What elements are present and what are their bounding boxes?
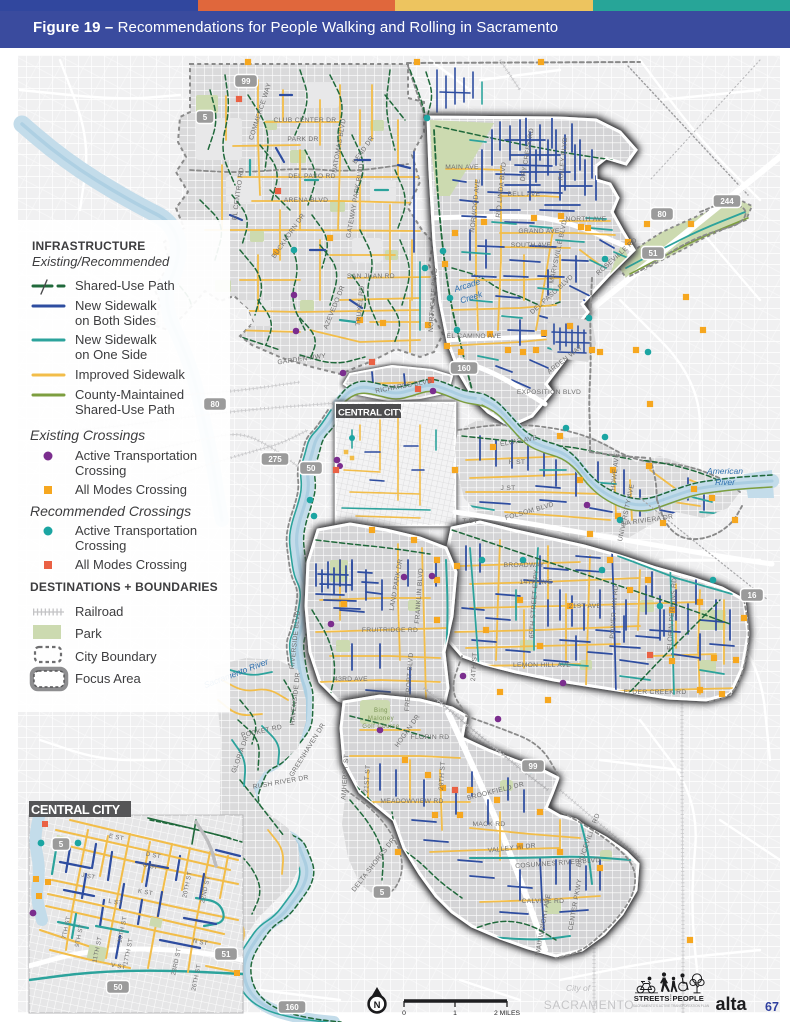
svg-text:Railroad: Railroad: [75, 604, 123, 619]
svg-text:Crossing: Crossing: [75, 463, 126, 478]
svg-text:Bing: Bing: [374, 708, 388, 714]
svg-text:J ST: J ST: [501, 485, 516, 492]
svg-text:2 MILES: 2 MILES: [494, 1010, 521, 1017]
svg-text:City of: City of: [566, 983, 592, 993]
svg-text:Active Transportation: Active Transportation: [75, 523, 197, 538]
svg-text:SAN JUAN RD: SAN JUAN RD: [347, 273, 395, 280]
svg-text:43RD AVE: 43RD AVE: [334, 676, 368, 683]
svg-text:County-Maintained: County-Maintained: [75, 387, 184, 402]
svg-text:BELL AVE: BELL AVE: [508, 191, 541, 198]
svg-text:50: 50: [307, 464, 316, 473]
svg-text:Golf Course: Golf Course: [362, 724, 400, 730]
svg-text:Shared-Use Path: Shared-Use Path: [75, 402, 175, 417]
svg-text:275: 275: [268, 455, 282, 464]
svg-text:EXPOSITION BLVD: EXPOSITION BLVD: [517, 389, 581, 396]
svg-text:Existing/Recommended: Existing/Recommended: [32, 254, 170, 269]
svg-text:Park: Park: [75, 626, 102, 641]
svg-text:SOUTH AVE: SOUTH AVE: [511, 242, 552, 249]
svg-text:16: 16: [748, 591, 757, 600]
svg-text:Active Transportation: Active Transportation: [75, 448, 197, 463]
svg-text:PARK DR: PARK DR: [287, 136, 318, 143]
svg-text:New Sidewalk: New Sidewalk: [75, 332, 157, 347]
svg-text:80: 80: [211, 400, 220, 409]
svg-text:51: 51: [222, 950, 231, 959]
svg-text:51: 51: [649, 249, 658, 258]
svg-text:American: American: [706, 466, 743, 476]
svg-text:INFRASTRUCTURE: INFRASTRUCTURE: [32, 239, 145, 253]
svg-text:SACRAMENTO: SACRAMENTO: [544, 998, 634, 1012]
svg-text:N: N: [374, 1000, 381, 1011]
svg-text:Existing Crossings: Existing Crossings: [30, 427, 145, 443]
svg-text:on One Side: on One Side: [75, 347, 147, 362]
svg-text:City Boundary: City Boundary: [75, 649, 157, 664]
svg-text:244: 244: [720, 197, 734, 206]
svg-text:STREETS: STREETS: [634, 994, 670, 1003]
svg-text:BROADWAY: BROADWAY: [504, 562, 545, 569]
svg-text:Improved Sidewalk: Improved Sidewalk: [75, 367, 185, 382]
svg-text:DESTINATIONS + BOUNDARIES: DESTINATIONS + BOUNDARIES: [30, 580, 218, 594]
svg-text:Focus Area: Focus Area: [75, 671, 142, 686]
svg-text:21ST AVE: 21ST AVE: [569, 603, 602, 610]
svg-text:99: 99: [529, 762, 538, 771]
svg-text:CLUB CENTER DR: CLUB CENTER DR: [274, 117, 337, 124]
svg-text:PEOPLE: PEOPLE: [673, 994, 704, 1003]
svg-text:ELDER CREEK RD: ELDER CREEK RD: [624, 689, 687, 696]
svg-text:5: 5: [59, 840, 64, 849]
svg-text:SACRAMENTO'S ACTIVE TRANSPORTA: SACRAMENTO'S ACTIVE TRANSPORTATION PLAN: [633, 1004, 710, 1008]
svg-text:ARENA BLVD: ARENA BLVD: [284, 197, 329, 204]
svg-text:Crossing: Crossing: [75, 538, 126, 553]
svg-text:160: 160: [285, 1003, 299, 1012]
svg-text:MACK RD: MACK RD: [473, 821, 506, 828]
svg-text:5: 5: [203, 113, 208, 122]
svg-text:Shared-Use Path: Shared-Use Path: [75, 278, 175, 293]
svg-text:River: River: [715, 477, 736, 487]
svg-text:T ST: T ST: [462, 518, 478, 525]
svg-text:5: 5: [380, 888, 385, 897]
svg-text:50: 50: [114, 983, 123, 992]
svg-text:All Modes Crossing: All Modes Crossing: [75, 557, 187, 572]
svg-text:FRUITRIDGE RD: FRUITRIDGE RD: [362, 627, 418, 634]
svg-text:80: 80: [658, 210, 667, 219]
svg-text:GRAND AVE: GRAND AVE: [518, 228, 559, 235]
svg-text:LEMON HILL AVE: LEMON HILL AVE: [513, 662, 571, 669]
svg-text:MAIN AVE: MAIN AVE: [445, 164, 479, 171]
svg-text:alta: alta: [715, 994, 747, 1014]
svg-text:Recommended Crossings: Recommended Crossings: [30, 503, 191, 519]
svg-text:67: 67: [765, 1000, 779, 1014]
svg-text:FLORIN RD: FLORIN RD: [411, 734, 450, 741]
svg-text:99: 99: [242, 77, 251, 86]
svg-text:160: 160: [457, 364, 471, 373]
svg-text:MEADOWVIEW RD: MEADOWVIEW RD: [380, 798, 443, 805]
svg-text:All Modes Crossing: All Modes Crossing: [75, 482, 187, 497]
svg-text:1: 1: [453, 1010, 457, 1017]
svg-text:New Sidewalk: New Sidewalk: [75, 298, 157, 313]
svg-text:0: 0: [402, 1010, 406, 1017]
svg-text:DEL PASO RD: DEL PASO RD: [288, 173, 336, 180]
svg-text:EL CAMINO AVE: EL CAMINO AVE: [447, 333, 502, 340]
svg-text:H ST: H ST: [509, 459, 525, 466]
svg-text:on Both Sides: on Both Sides: [75, 313, 156, 328]
svg-text:CENTRAL CITY: CENTRAL CITY: [31, 802, 121, 817]
svg-text:NORTH AVE: NORTH AVE: [566, 216, 607, 223]
svg-text:Maloney: Maloney: [368, 716, 394, 722]
svg-text:CENTRAL CITY: CENTRAL CITY: [338, 408, 405, 419]
